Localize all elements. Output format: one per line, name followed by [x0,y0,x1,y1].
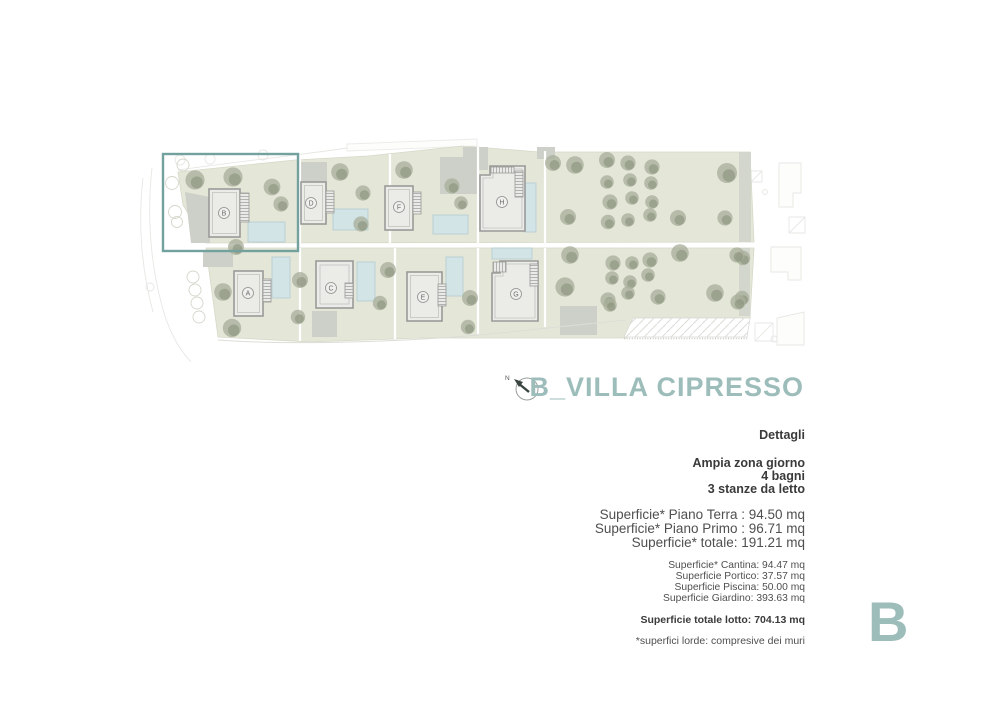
pool-a [272,257,290,298]
details-block: Dettagli Ampia zona giorno 4 bagni 3 sta… [595,429,805,647]
villa-label-e: E [421,295,426,302]
footnote-line: *superfici lorde: compresive dei muri [595,635,805,647]
area-secondary-line: Superficie Piscina: 50.00 mq [595,582,805,593]
feature-line: 3 stanze da letto [595,483,805,496]
page-title: B_VILLA CIPRESSO [529,372,804,403]
total-lot-line: Superficie totale lotto: 704.13 mq [595,614,805,626]
area-secondary-line: Superficie* Cantina: 94.47 mq [595,560,805,571]
area-secondary-line: Superficie Portico: 37.57 mq [595,571,805,582]
villa-label-c: C [328,286,333,293]
villa-label-d: D [308,201,313,208]
pool-e [446,257,463,296]
villa-c-building: C [316,261,353,308]
site-plan: A B C D E [0,0,999,705]
villa-label-f: F [397,205,401,212]
villa-g-building: G [492,261,538,321]
areas-secondary-group: Superficie* Cantina: 94.47 mq Superficie… [595,560,805,604]
villa-label-h: H [499,200,504,207]
details-heading: Dettagli [595,429,805,442]
pool-g [492,248,532,259]
watermark-letter: B [868,594,908,650]
pool-b [248,222,285,242]
area-line: Superficie* Piano Primo : 96.71 mq [595,522,805,536]
villa-h-building: H [480,166,525,231]
villa-label-b: B [222,211,227,218]
features-group: Ampia zona giorno 4 bagni 3 stanze da le… [595,457,805,496]
pool-h [525,183,536,232]
area-secondary-line: Superficie Giardino: 393.63 mq [595,593,805,604]
villa-label-a: A [246,291,251,298]
pool-f [433,215,468,234]
area-line: Superficie* totale: 191.21 mq [595,536,805,550]
areas-main-group: Superficie* Piano Terra : 94.50 mq Super… [595,508,805,549]
villa-e-building: E [407,272,446,321]
villa-label-g: G [513,292,518,299]
area-line: Superficie* Piano Terra : 94.50 mq [595,508,805,522]
pool-c [357,262,375,301]
compass-north-label: N [505,375,510,382]
page: A B C D E [0,0,999,705]
